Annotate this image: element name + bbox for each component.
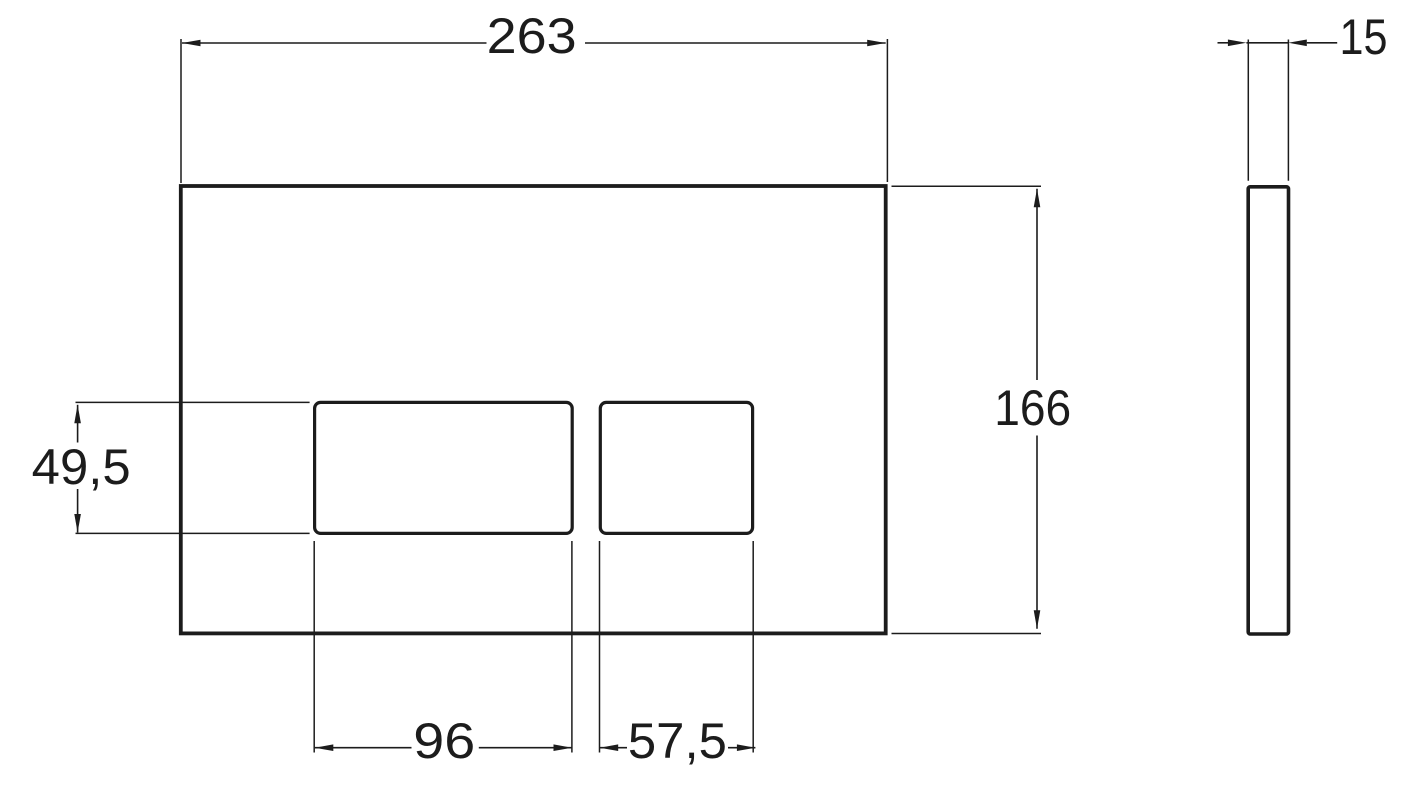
svg-text:166: 166 xyxy=(994,380,1071,436)
svg-text:263: 263 xyxy=(487,8,577,64)
svg-text:15: 15 xyxy=(1340,9,1388,65)
svg-text:96: 96 xyxy=(413,713,475,769)
svg-text:57,5: 57,5 xyxy=(628,713,727,769)
svg-text:49,5: 49,5 xyxy=(32,439,131,495)
